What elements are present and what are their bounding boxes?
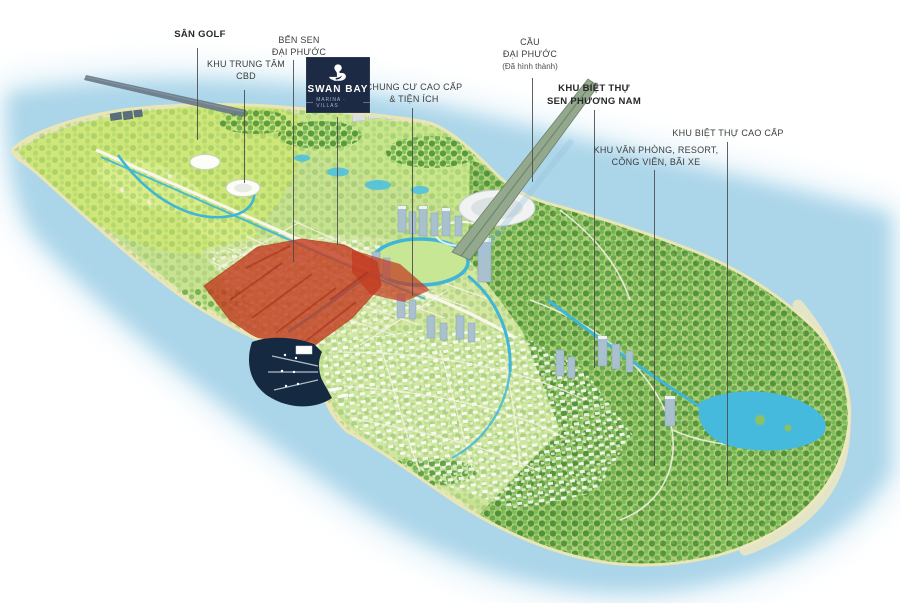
label-text: CẦU	[502, 36, 558, 48]
leader-chung-cu	[412, 108, 413, 296]
leader-cau-dai-phuoc	[532, 78, 533, 182]
tree-clump	[278, 121, 362, 149]
label-sen-phuong-nam: KHU BIỆT THỰ SEN PHƯƠNG NAM	[547, 82, 641, 108]
masterplan-map: SÂN GOLF KHU TRUNG TÂM CBD BẾN SEN ĐẠI P…	[0, 0, 900, 603]
lake-island	[785, 425, 792, 432]
label-text: KHU BIỆT THỰ CAO CẤP	[672, 127, 783, 139]
lake-island	[755, 415, 765, 425]
label-khu-van-phong: KHU VĂN PHÒNG, RESORT, CÔNG VIÊN, BÃI XE	[594, 144, 719, 169]
label-biet-thu-cao-cap: KHU BIỆT THỰ CAO CẤP	[672, 127, 783, 139]
swan-bay-tagline: MARINA · VILLAS	[306, 97, 370, 109]
label-text: (Đã hình thành)	[502, 61, 558, 72]
label-chung-cu-cao-cap: CHUNG CƯ CAO CẤP & TIỆN ÍCH	[366, 81, 463, 106]
label-text: SÂN GOLF	[174, 28, 225, 41]
label-text: ĐẠI PHƯỚC	[502, 48, 558, 60]
label-san-golf: SÂN GOLF	[174, 28, 225, 41]
leader-san-golf	[197, 48, 198, 140]
leader-biet-thu-cao-cap	[727, 142, 728, 486]
leader-khu-van-phong	[654, 170, 655, 466]
label-text: KHU VĂN PHÒNG, RESORT,	[594, 144, 719, 156]
label-text: CÔNG VIÊN, BÃI XE	[594, 156, 719, 168]
label-text: BẾN SEN	[272, 34, 326, 46]
leader-ben-sen	[293, 60, 294, 262]
label-khu-trung-tam-cbd: KHU TRUNG TÂM CBD	[207, 58, 285, 83]
marina-clubhouse	[296, 346, 312, 354]
label-cau-dai-phuoc: CẦU ĐẠI PHƯỚC (Đã hình thành)	[502, 36, 558, 72]
swan-bay-logo: SWAN BAY MARINA · VILLAS	[306, 57, 370, 113]
leader-swan-bay	[337, 117, 338, 245]
label-ben-sen-dai-phuoc: BẾN SEN ĐẠI PHƯỚC	[272, 34, 326, 59]
label-text: CHUNG CƯ CAO CẤP	[366, 81, 463, 93]
label-text: SEN PHƯƠNG NAM	[547, 95, 641, 108]
label-text: & TIỆN ÍCH	[366, 93, 463, 105]
swan-icon	[327, 62, 349, 82]
label-text: KHU TRUNG TÂM	[207, 58, 285, 70]
label-text: KHU BIỆT THỰ	[547, 82, 641, 95]
label-text: CBD	[207, 70, 285, 82]
leader-cbd	[244, 90, 245, 183]
swan-bay-brand: SWAN BAY	[308, 84, 369, 95]
